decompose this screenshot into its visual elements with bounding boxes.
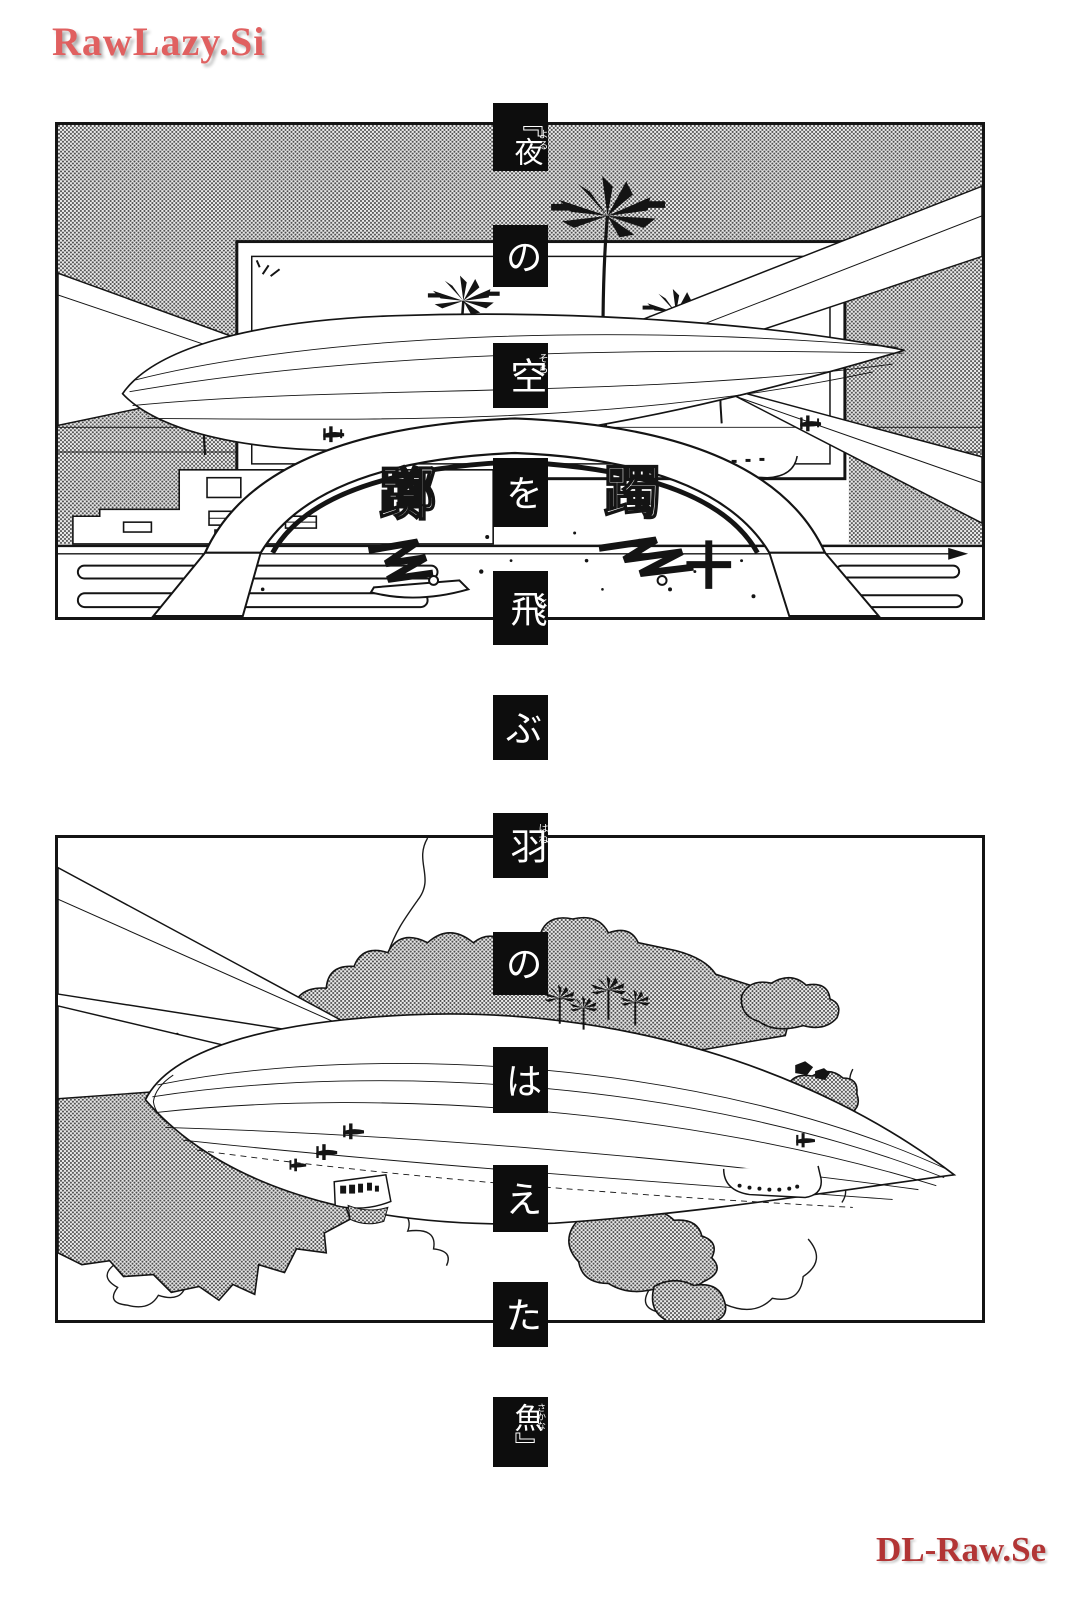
title-box-1: 『夜 よる (493, 103, 548, 171)
furigana: と (535, 597, 547, 608)
title-char: の (493, 932, 548, 995)
watermark-bottom: DL-Raw.Se (876, 1530, 1046, 1570)
furigana: はね (535, 823, 547, 845)
furigana: さかな (535, 1403, 547, 1430)
title-box-8: の (493, 932, 548, 995)
title-char: え (493, 1165, 548, 1232)
title-char: ぶ (493, 695, 548, 760)
furigana: よる (535, 129, 547, 151)
arch-kanji-left: 躑 (379, 463, 437, 527)
title-box-4: を (493, 458, 548, 527)
title-char: を (493, 458, 548, 527)
title-char: た (493, 1282, 548, 1347)
title-box-11: た (493, 1282, 548, 1347)
bolt-icon (429, 576, 438, 585)
manga-page: RawLazy.Si (0, 0, 1082, 1600)
boat-shape (371, 580, 468, 597)
watermark-top: RawLazy.Si (52, 18, 265, 65)
title-box-12: 魚』 さかな (493, 1397, 548, 1467)
furigana: そら (535, 353, 547, 375)
ground-lines (58, 546, 982, 560)
title-box-2: の (493, 225, 548, 287)
title-box-10: え (493, 1165, 548, 1232)
title-box-3: 空 そら (493, 343, 548, 408)
title-char: 飛 (493, 571, 548, 645)
title-box-9: は (493, 1047, 548, 1113)
title-box-6: ぶ (493, 695, 548, 760)
bolt-icon (658, 576, 667, 585)
title-box-5: 飛 と (493, 571, 548, 645)
arch-kanji-right: 躅 (603, 461, 661, 525)
title-box-7: 羽 はね (493, 813, 548, 878)
title-char: の (493, 225, 548, 287)
title-char: は (493, 1047, 548, 1113)
